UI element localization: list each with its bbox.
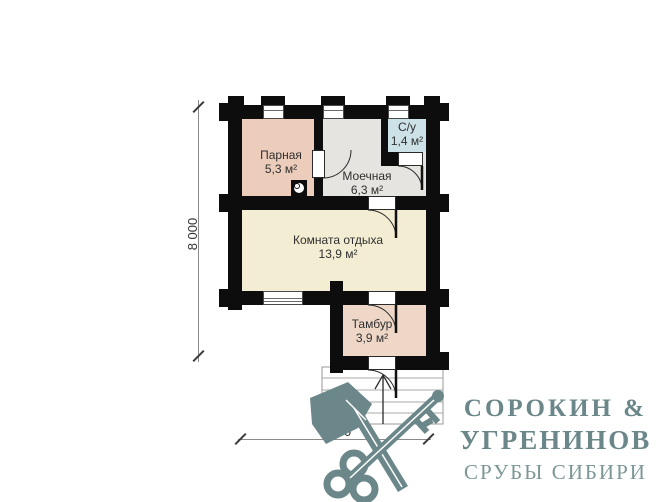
room-name: С/у (377, 120, 437, 134)
logo-line-2: УГРЕНИНОВ (448, 425, 663, 456)
logo-line-1: СОРОКИН & (448, 395, 663, 423)
room-name: Тамбур (322, 317, 422, 331)
room-label-komnata: Комната отдыха 13,9 м² (268, 233, 408, 261)
axe-and-key-icon (296, 376, 466, 502)
dimension-label-vertical: 8 000 (185, 204, 201, 264)
room-area: 3,9 м² (322, 331, 422, 345)
room-name: Комната отдыха (268, 233, 408, 247)
room-name: Парная (231, 148, 331, 162)
room-label-su: С/у 1,4 м² (377, 120, 437, 148)
room-area: 13,9 м² (268, 247, 408, 261)
room-area: 1,4 м² (377, 134, 437, 148)
logo-line-3: СРУБЫ СИБИРИ (448, 460, 663, 485)
floor-plan-page: Парная 5,3 м² Моечная 6,3 м² С/у 1,4 м² … (0, 0, 667, 502)
room-area: 5,3 м² (231, 162, 331, 176)
room-label-moechnaya: Моечная 6,3 м² (317, 169, 417, 197)
room-label-tambur: Тамбур 3,9 м² (322, 317, 422, 345)
room-area: 6,3 м² (317, 183, 417, 197)
room-label-parnaya: Парная 5,3 м² (231, 148, 331, 176)
room-name: Моечная (317, 169, 417, 183)
